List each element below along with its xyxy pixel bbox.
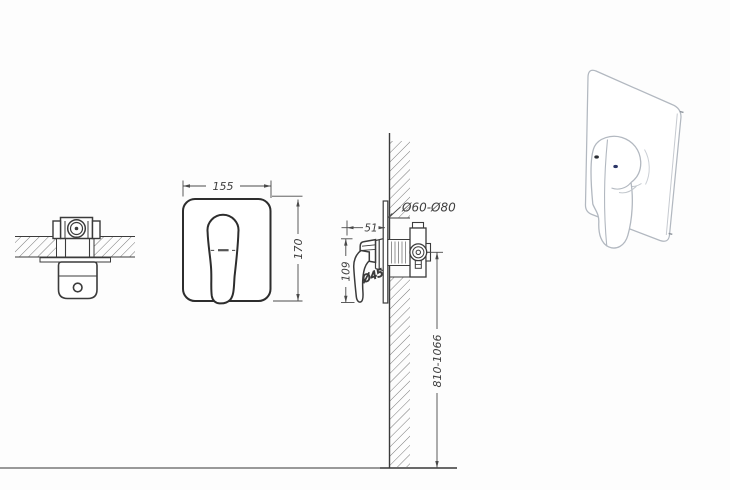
side-trim-plate xyxy=(383,201,388,303)
side-wall-hatch-lower xyxy=(390,277,410,467)
side-view: 51 109 Ø45 Ø60-Ø80 810-1066 xyxy=(341,133,457,468)
handle-top xyxy=(59,262,98,299)
side-escutcheon xyxy=(376,239,384,271)
perspective-view xyxy=(585,70,683,248)
dim-label-install-height: 810-1066 xyxy=(431,335,444,388)
technical-drawing-sheet: 155 170 xyxy=(0,0,730,490)
dim-handle-depth: 51 xyxy=(342,221,386,236)
indicator-dot-cold xyxy=(613,165,618,168)
side-sleeve xyxy=(388,240,410,266)
front-view: 155 170 xyxy=(183,180,305,303)
top-view-wall-hatch-left xyxy=(15,237,57,258)
dim-label-handle-depth: 51 xyxy=(364,222,377,234)
dim-lever-length: 109 xyxy=(341,239,355,303)
valve-body-top xyxy=(53,218,100,239)
indicator-dot-hot xyxy=(594,155,599,158)
top-view-wall-hatch-right xyxy=(94,237,135,258)
dim-label-lever-length: 109 xyxy=(341,261,353,281)
dim-install-height: 810-1066 xyxy=(428,252,444,468)
shower-mixer-drawing: 155 170 xyxy=(0,0,730,490)
front-handle xyxy=(208,215,239,304)
top-view xyxy=(15,218,135,299)
side-valve-body xyxy=(410,223,431,278)
dim-label-plate-height: 170 xyxy=(292,239,305,260)
dim-label-plate-width: 155 xyxy=(213,180,234,193)
dim-plate-width: 155 xyxy=(183,180,271,198)
dim-label-wall-hole-diameter: Ø60-Ø80 xyxy=(401,201,456,215)
handle-screw-circle xyxy=(73,283,82,292)
dim-plate-height: 170 xyxy=(272,196,305,301)
